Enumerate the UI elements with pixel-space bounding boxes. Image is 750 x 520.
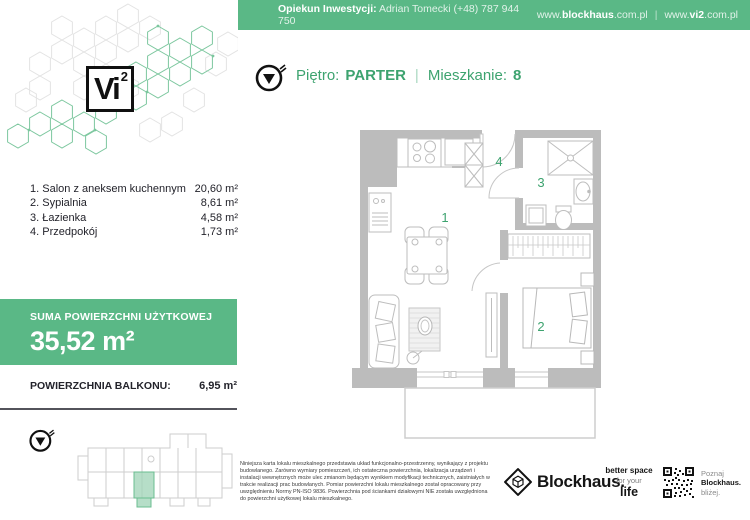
highlighted-unit [134, 472, 154, 507]
title-separator: | [412, 67, 422, 84]
balcony-area-row: POWIERZCHNIA BALKONU: 6,95 m² [30, 380, 237, 392]
room-label-4: 4 [495, 154, 502, 169]
room-row-3: 3. Łazienka 4,58 m² [30, 211, 238, 225]
north-arrow-icon [253, 60, 289, 94]
qr-code [662, 466, 695, 499]
room-list: 1. Salon z aneksem kuchennym 20,60 m² 2.… [30, 182, 238, 240]
floor-plan: 1 2 3 4 [345, 115, 645, 455]
windows [417, 372, 548, 378]
room-name: 3. Łazienka [30, 211, 86, 225]
north-arrow-icon-small [27, 426, 57, 454]
blockhaus-website-link[interactable]: www.blockhaus.com.pl [537, 9, 648, 21]
sideboard-icon [486, 293, 497, 357]
room-area: 4,58 m² [201, 211, 238, 225]
bedroom-wardrobe-icon [508, 234, 590, 258]
caretaker-info: Opiekun Inwestycji: Adrian Tomecki (+48)… [278, 3, 537, 27]
balcony-label: POWIERZCHNIA BALKONU: [30, 380, 171, 392]
floor-label: Piętro: [296, 67, 339, 84]
washing-machine-icon [526, 205, 546, 226]
room-label-2: 2 [537, 319, 544, 334]
qr-caption-line2: Blockhaus. [701, 478, 741, 487]
total-area-box: SUMA POWIERZCHNI UŻYTKOWEJ 35,52 m² [0, 299, 237, 365]
room-area: 1,73 m² [201, 225, 238, 239]
brand-logo-area: Vi 2 [0, 0, 238, 175]
toilet-icon [556, 206, 572, 230]
website-separator: | [655, 9, 658, 21]
apartment-card-page: Opiekun Inwestycji: Adrian Tomecki (+48)… [0, 0, 750, 520]
room-row-4: 4. Przedpokój 1,73 m² [30, 225, 238, 239]
washbasin-icon [574, 179, 593, 204]
tagline-line1: better space [602, 466, 656, 475]
qr-caption-line3: bliżej. [701, 488, 741, 497]
room-area: 20,60 m² [195, 182, 238, 196]
room-row-2: 2. Sypialnia 8,61 m² [30, 196, 238, 210]
room-label-3: 3 [537, 175, 544, 190]
balcony-outline [405, 388, 595, 438]
floor-lamp-icon [407, 351, 422, 364]
logo-superscript: 2 [121, 69, 128, 84]
stove-icon [408, 139, 441, 167]
header-bar: Opiekun Inwestycji: Adrian Tomecki (+48)… [238, 0, 750, 30]
room-label-1: 1 [441, 210, 448, 225]
vi2-website-link[interactable]: www.vi2.com.pl [664, 9, 738, 21]
total-area-label: SUMA POWIERZCHNI UŻYTKOWEJ [30, 311, 237, 323]
room-name: 4. Przedpokój [30, 225, 97, 239]
dining-set [405, 227, 448, 284]
bed-icon [523, 273, 594, 364]
sofa-icon [369, 295, 399, 368]
section-divider [0, 408, 237, 410]
blockhaus-diamond-icon [503, 467, 533, 497]
balcony-value: 6,95 m² [199, 380, 237, 392]
floor-value: PARTER [345, 67, 406, 84]
vi2-logo: Vi 2 [86, 66, 134, 112]
room-row-1: 1. Salon z aneksem kuchennym 20,60 m² [30, 182, 238, 196]
tagline-line2: for your [602, 476, 656, 485]
shower-icon [548, 141, 593, 175]
hall-wardrobe-icon [465, 143, 483, 187]
tagline-line3: life [602, 485, 656, 499]
rug-icon [409, 308, 440, 351]
legal-disclaimer: Niniejsza karta lokalu mieszkalnego prze… [240, 461, 492, 502]
room-name: 2. Sypialnia [30, 196, 87, 210]
brand-tagline: better space for your life [602, 466, 656, 499]
total-area-value: 35,52 m² [30, 326, 237, 357]
qr-caption: Poznaj Blockhaus. bliżej. [701, 469, 741, 497]
unit-label: Mieszkanie: [428, 67, 507, 84]
floor-unit-title: Piętro: PARTER | Mieszkanie: 8 [296, 67, 521, 84]
building-overview-plan [74, 426, 238, 518]
logo-text: Vi [94, 73, 119, 104]
website-links: www.blockhaus.com.pl | www.vi2.com.pl [537, 9, 738, 21]
room-area: 8,61 m² [201, 196, 238, 210]
caretaker-label: Opiekun Inwestycji: [278, 3, 377, 15]
room-name: 1. Salon z aneksem kuchennym [30, 182, 186, 196]
unit-value: 8 [513, 67, 521, 84]
qr-caption-line1: Poznaj [701, 469, 741, 478]
